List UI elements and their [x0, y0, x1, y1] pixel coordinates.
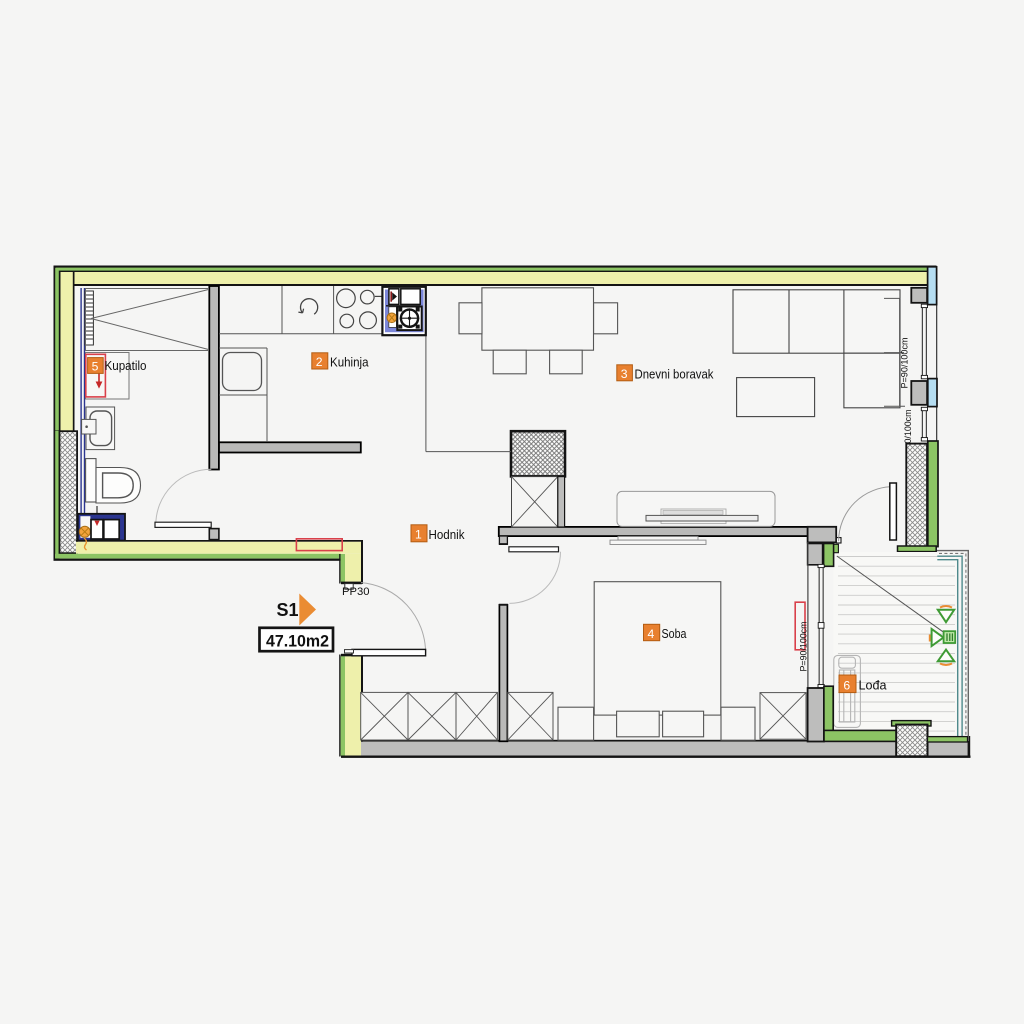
svg-text:P=90/100cm: P=90/100cm: [900, 337, 910, 388]
svg-text:Kuhinja: Kuhinja: [330, 355, 369, 370]
svg-text:Dnevni boravak: Dnevni boravak: [635, 367, 714, 382]
svg-text:PP30: PP30: [342, 586, 370, 598]
svg-text:6: 6: [843, 678, 850, 692]
svg-text:P=90/100cm: P=90/100cm: [799, 621, 809, 671]
svg-text:2: 2: [316, 355, 323, 369]
svg-text:1: 1: [415, 528, 422, 542]
svg-text:Hodnik: Hodnik: [429, 527, 465, 542]
svg-text:47.10m2: 47.10m2: [266, 633, 329, 651]
svg-text:S1: S1: [277, 600, 299, 620]
svg-text:0/100cm: 0/100cm: [903, 409, 913, 443]
svg-text:4: 4: [648, 627, 655, 641]
svg-text:5: 5: [92, 360, 99, 374]
svg-text:Kupatilo: Kupatilo: [105, 358, 147, 373]
svg-text:Soba: Soba: [662, 626, 688, 641]
svg-text:Lođa: Lođa: [859, 678, 888, 693]
svg-text:3: 3: [621, 367, 628, 381]
